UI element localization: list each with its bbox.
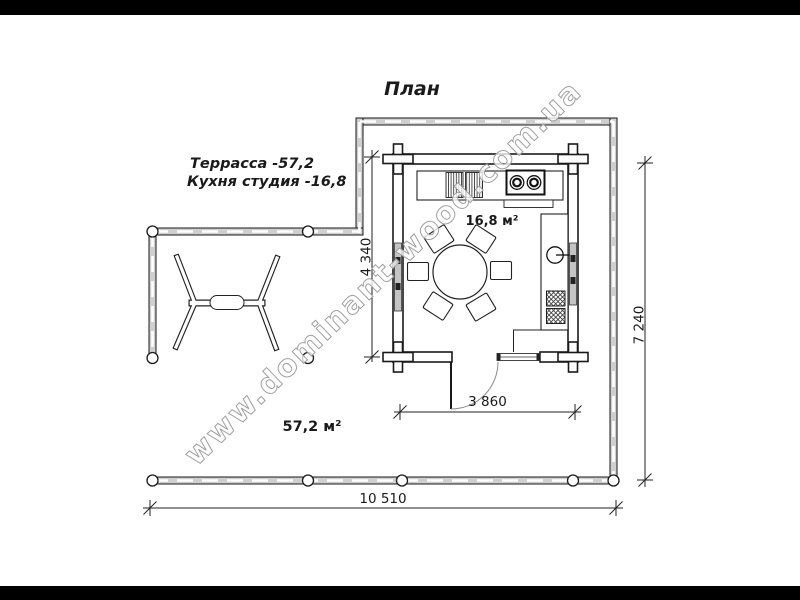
- post: [568, 475, 579, 486]
- post: [147, 353, 158, 364]
- post: [303, 475, 314, 486]
- chair: [491, 262, 512, 280]
- counter-step-outline: [514, 330, 542, 352]
- terrace-area-label: 57,2 м²: [282, 419, 341, 435]
- post: [147, 475, 158, 486]
- picnic-table: [176, 257, 277, 348]
- kitchen-fixtures: [408, 171, 570, 353]
- appliance-crosshatched: [547, 309, 566, 324]
- post: [608, 475, 619, 486]
- dimension-label-10510: 10 510: [359, 491, 406, 507]
- dimension-label-7240: 7 240: [632, 306, 648, 345]
- legend-kitchen: Кухня студия -16,8: [187, 174, 347, 190]
- window-right: [570, 243, 577, 305]
- letterbox-bottom: [0, 586, 800, 600]
- floor-plan-page: 4 340 7 240 3 860 10 510 План Террасса -…: [0, 0, 800, 600]
- post: [147, 226, 158, 237]
- floor-plan-drawing: 4 340 7 240 3 860 10 510 План Террасса -…: [0, 0, 800, 600]
- dimension-label-3860: 3 860: [468, 394, 507, 410]
- post: [303, 226, 314, 237]
- appliance-crosshatched: [547, 291, 566, 306]
- dining-table: [433, 245, 487, 299]
- letterbox-top: [0, 0, 800, 15]
- kitchen-area-label: 16,8 м²: [466, 214, 519, 229]
- plan-title: План: [384, 78, 440, 100]
- legend-terrace: Террасса -57,2: [190, 156, 314, 172]
- counter-shelf: [504, 200, 553, 208]
- post: [397, 475, 408, 486]
- picnic-table-top: [210, 296, 244, 310]
- watermark-text: www.dominant-wood.com.ua: [178, 74, 590, 473]
